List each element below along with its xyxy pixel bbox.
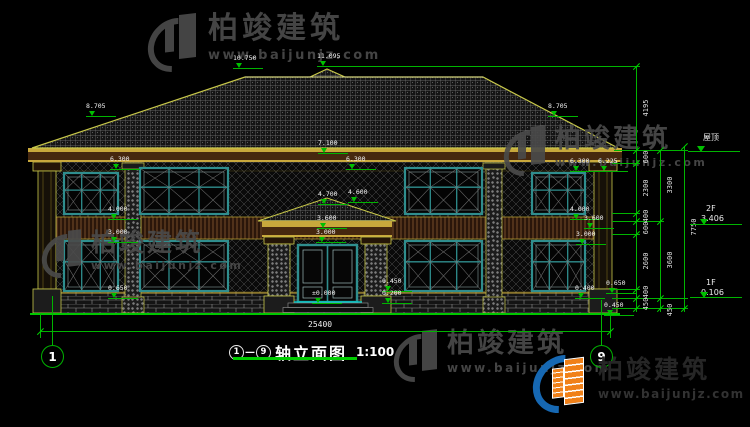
dim-value: 4195 [642, 91, 650, 125]
footer-logo-brand: 柏竣建筑 [598, 356, 745, 384]
elevation-marker: 4.600 [348, 189, 388, 207]
title-text: 轴立面图 [275, 340, 347, 364]
dim-value: 600 [642, 211, 650, 245]
window [140, 168, 228, 214]
floor2-label: 2F [706, 204, 716, 213]
elevation-marker: 8.705 [86, 103, 126, 121]
elevation-marker: 6.300 [346, 156, 386, 174]
elevation-marker: 3.000 [108, 229, 148, 247]
dim-value: 3300 [666, 168, 674, 202]
elevation-marker: 6.225 [598, 158, 638, 176]
elevation-marker: 3.000 [576, 231, 616, 249]
watermark-logo-icon [396, 330, 442, 386]
watermark-logo-icon [44, 230, 86, 282]
window [405, 168, 482, 214]
elevation-marker: 4.000 [108, 206, 148, 224]
dim-value: 2600 [642, 244, 650, 278]
elevation-marker: 11.095 [317, 53, 357, 71]
watermark-logo-icon [506, 126, 550, 180]
elevation-marker: 3.000 [316, 229, 356, 247]
drawing-title: 1 — 9 轴立面图 1:100 [229, 340, 394, 364]
title-separator: — [245, 347, 255, 358]
roof-label: 屋顶 [703, 132, 719, 143]
title-underline [233, 357, 357, 360]
cad-canvas: 柏竣建筑 www.baijunjz.com 柏竣建筑 www.baijunjz.… [0, 0, 750, 427]
floor1-label: 1F [706, 278, 716, 287]
axis-bubble-1: 1 [41, 345, 64, 368]
footer-logo: 柏竣建筑 www.baijunjz.com [534, 356, 745, 418]
dim-value: 25400 [308, 320, 332, 329]
elevation-marker: 8.705 [548, 103, 588, 121]
elevation-marker: 0.200 [382, 290, 422, 308]
dim-value: 450 [642, 287, 650, 321]
dim-value: 600 [642, 140, 650, 174]
watermark-logo-icon [150, 14, 202, 76]
elevation-marker: 10.750 [233, 55, 273, 73]
elevation-marker: 6.300 [110, 156, 150, 174]
watermark-url: www.baijunjz.com [91, 259, 243, 272]
title-scale: 1:100 [356, 345, 394, 359]
dim-value: 3600 [666, 243, 674, 277]
footer-logo-icon [534, 356, 592, 418]
watermark-brand: 柏竣建筑 [447, 330, 610, 357]
elevation-marker: 0.650 [108, 285, 148, 303]
watermark-brand: 柏竣建筑 [208, 14, 381, 44]
dim-value: 7750 [690, 210, 698, 244]
footer-logo-url: www.baijunjz.com [598, 387, 745, 401]
ground-line [30, 313, 620, 315]
entry-step [283, 308, 373, 313]
elevation-marker: ±0.000 [312, 290, 352, 308]
dim-value: 450 [666, 293, 674, 327]
